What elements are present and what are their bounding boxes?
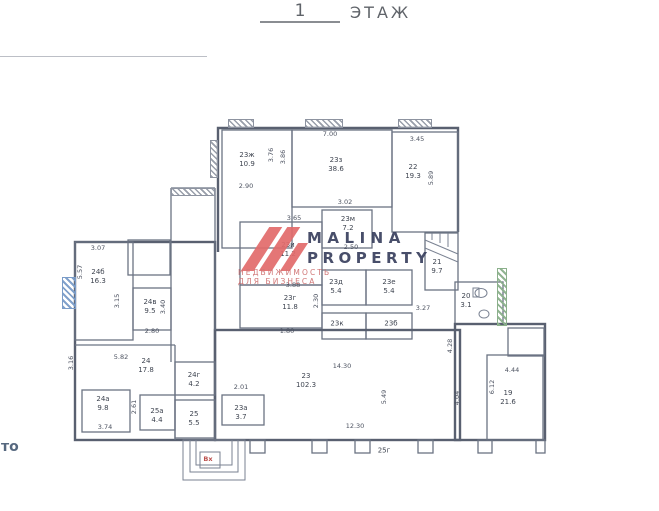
dimension-label: 3.07 (91, 244, 105, 252)
window-hatch (210, 140, 218, 178)
dimension-label: 3.02 (338, 198, 352, 206)
shaft-hatch (497, 268, 507, 326)
window-hatch (228, 119, 254, 128)
dimension-label: 3.45 (410, 135, 424, 143)
dimension-label: 4.28 (446, 339, 454, 353)
dimension-label: 3.74 (98, 423, 112, 431)
room-label-24: 2417.8 (138, 357, 154, 375)
dimension-label: 5.49 (380, 390, 388, 404)
watermark-tagline: НЕДВИЖИМОСТЬ ДЛЯ БИЗНЕСА (238, 268, 331, 286)
balcony-hatch (62, 277, 76, 309)
room-label-23г: 23г11.8 (282, 294, 298, 312)
dimension-label: 3.65 (287, 214, 301, 222)
room-label-25г: 25г (378, 446, 391, 455)
room-label-19: 1921.6 (500, 389, 516, 407)
dimension-label: 1.80 (280, 327, 294, 335)
room-label-23: 23102.3 (296, 372, 316, 390)
room-label-24а: 24а9.8 (96, 395, 109, 413)
dimension-label: 5.89 (427, 171, 435, 185)
dimension-label: 5.82 (114, 353, 128, 361)
room-label-24б: 24б16.3 (90, 268, 106, 286)
watermark-brand-line1: MALINA (307, 229, 406, 247)
dimension-label: 3.16 (67, 356, 75, 370)
dimension-label: 6.12 (488, 380, 496, 394)
room-label-24г: 24г4.2 (188, 371, 201, 389)
dimension-label: 5.57 (76, 265, 84, 279)
window-hatch (305, 119, 343, 128)
dimension-label: 12.30 (346, 422, 365, 430)
dimension-label: 2.01 (234, 383, 248, 391)
room-label-23ж: 23ж10.9 (239, 151, 255, 169)
dimension-label: 4.04 (453, 391, 461, 405)
room-label-25: 255.5 (188, 410, 199, 428)
dimension-label: 2.90 (239, 182, 253, 190)
room-label-23б: 23б (384, 319, 397, 328)
dimension-label: 3.86 (279, 150, 287, 164)
window-hatch (398, 119, 432, 128)
dimension-label: 2.61 (130, 400, 138, 414)
dimension-label: 3.76 (267, 148, 275, 162)
room-label-24в: 24в9.5 (143, 298, 156, 316)
malina-logo-icon (247, 226, 305, 272)
room-label-23а: 23а3.7 (234, 404, 247, 422)
entrance-label: Вх (199, 455, 217, 463)
room-label-23з: 23з38.6 (328, 156, 344, 174)
dimension-label: 2.30 (312, 294, 320, 308)
dimension-label: 4.44 (505, 366, 519, 374)
room-label-23е: 23е5.4 (382, 278, 395, 296)
dimension-label: 14.30 (333, 362, 352, 370)
dimension-label: 2.80 (145, 327, 159, 335)
dimension-label: 3.27 (416, 304, 430, 312)
dimension-label: 3.15 (113, 294, 121, 308)
room-label-22: 2219.3 (405, 163, 421, 181)
floor-plan-page: 1 ЭТАЖ то (0, 0, 659, 511)
window-hatch (171, 188, 215, 196)
dimension-label: 3.40 (159, 300, 167, 314)
watermark-brand-line2: PROPERTY (307, 249, 432, 267)
dimension-label: 7.00 (323, 130, 337, 138)
room-label-25а: 25а4.4 (150, 407, 163, 425)
room-label-23к: 23к (330, 319, 343, 328)
room-label-21: 219.7 (431, 258, 442, 276)
room-label-20: 203.1 (460, 292, 471, 310)
